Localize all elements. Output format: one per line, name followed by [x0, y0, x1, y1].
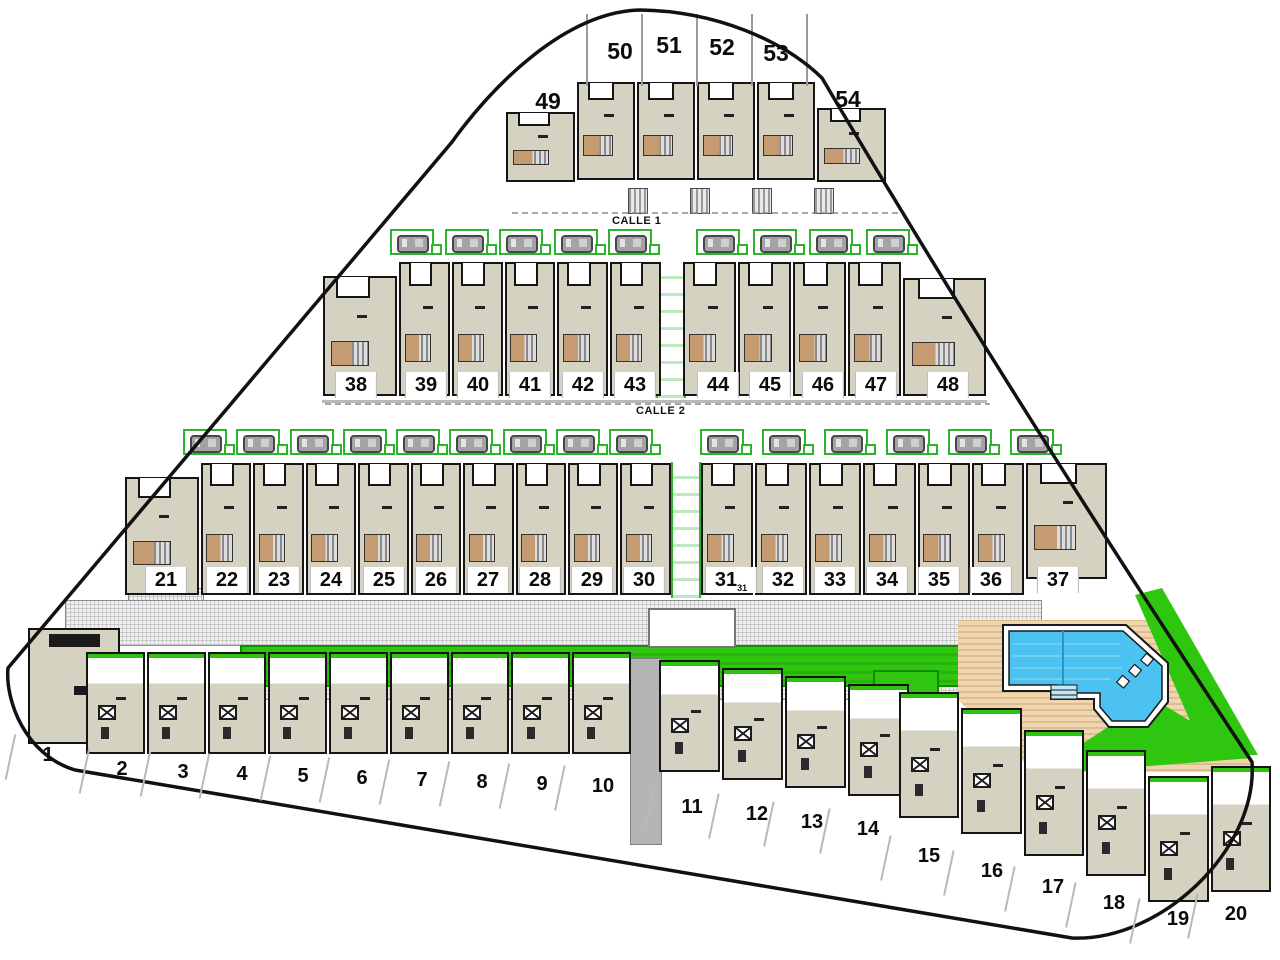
- site-plan: 495051525354 383940414243 4445464748 212…: [0, 0, 1280, 960]
- plot-number: 18: [1094, 890, 1134, 916]
- plot-number-text: 19: [1167, 908, 1189, 930]
- plot-number: 17: [1033, 874, 1073, 900]
- plot-number: 16: [972, 858, 1012, 884]
- plot-labels-15-20: 151617181920: [0, 0, 1280, 960]
- plot-number-text: 20: [1225, 903, 1247, 925]
- plot-number-text: 17: [1042, 876, 1064, 898]
- plot-number-text: 18: [1103, 892, 1125, 914]
- street-label-calle-2: CALLE 2: [636, 405, 685, 417]
- plot-number: 20: [1216, 901, 1256, 927]
- plot-number-text: 16: [981, 860, 1003, 882]
- plot-number: 15: [909, 843, 949, 869]
- plot-number-text: 15: [918, 845, 940, 867]
- street-label-calle-1: CALLE 1: [612, 215, 661, 227]
